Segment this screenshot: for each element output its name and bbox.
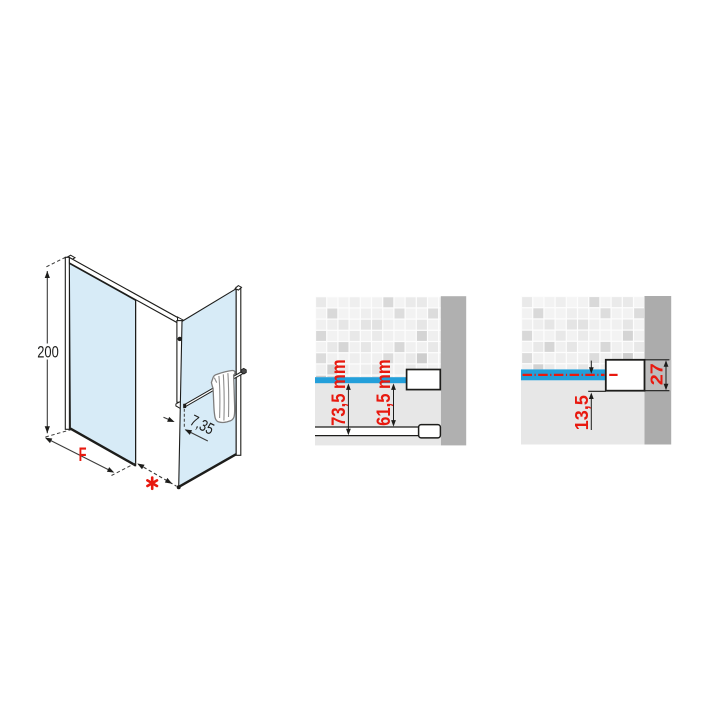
svg-text:27: 27 [647, 363, 667, 385]
svg-text:F: F [79, 445, 87, 466]
svg-text:73,5 mm: 73,5 mm [328, 359, 349, 426]
svg-text:13,5: 13,5 [572, 395, 592, 430]
svg-text:61,5 mm: 61,5 mm [373, 359, 394, 426]
svg-text:200: 200 [37, 343, 59, 362]
